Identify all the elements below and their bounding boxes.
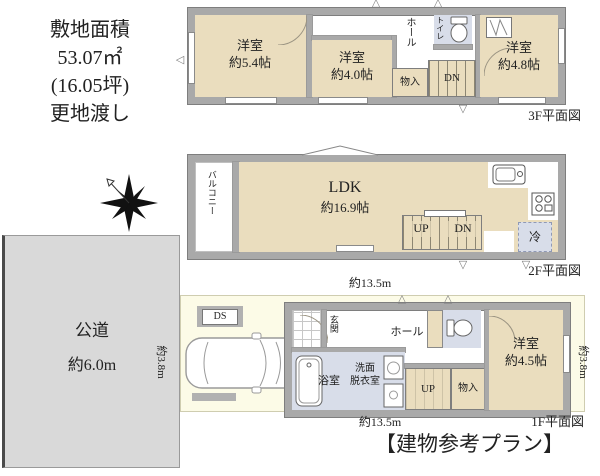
door-arc-icon: [278, 16, 307, 45]
refrigerator-label: 冷: [519, 223, 551, 251]
floor1-bathroom-label: 浴室: [312, 374, 346, 388]
stove-icon: [531, 192, 555, 216]
vent-triangle-icon: ◁: [174, 55, 186, 65]
floor2-ldk-size: 約16.9帖: [290, 200, 400, 217]
floor-plan-sheet: 敷地面積 53.07㎡ (16.05坪) 更地渡し 公道 約6.0m 洋室 約5…: [0, 0, 600, 476]
refrigerator-space: 冷: [518, 222, 552, 252]
window: [188, 32, 195, 84]
window: [225, 97, 277, 104]
floor3-storage: 物入: [392, 68, 428, 97]
wall: [322, 310, 326, 350]
window: [336, 245, 374, 252]
vent-triangle-icon: ▽: [455, 104, 471, 114]
floor1-storage: 物入: [451, 368, 485, 410]
vent-triangle-icon: ▽: [455, 260, 471, 270]
floor1-closet: [427, 310, 443, 348]
window: [563, 335, 570, 373]
vent-triangle-icon: △: [440, 294, 456, 304]
closet-hanger-icon: [486, 17, 512, 38]
door-arc-icon: [484, 48, 512, 76]
road-name: 公道: [5, 320, 179, 342]
floor3-hall-label: ホール: [404, 17, 415, 47]
window: [318, 97, 368, 104]
kitchen-sink-icon: [492, 164, 526, 185]
floor1-room-label: 洋室 約4.5帖: [489, 336, 563, 370]
floor2-balcony-label: バルコニー: [206, 170, 216, 215]
floor1-stairs: UP: [405, 368, 451, 410]
floor3-caption: 3F平面図: [495, 105, 581, 124]
land-condition: 更地渡し: [6, 100, 174, 128]
floor3-toilet-label: トイレ: [435, 16, 444, 40]
floor3-stairs: DN: [428, 60, 476, 97]
vent-triangle-icon: △: [394, 294, 410, 304]
floor1-stairs-up: UP: [406, 369, 450, 409]
floor3-stairs-label: DN: [429, 61, 475, 96]
floor3-room-b-label: 洋室 約4.0帖: [305, 50, 399, 84]
washing-machine-icon: [383, 355, 404, 380]
plan-title: 【建物参考プラン】: [375, 431, 555, 458]
wall: [434, 45, 472, 49]
vent-triangle-icon: △: [368, 0, 384, 8]
window: [498, 97, 546, 104]
vent-triangle-icon: △: [430, 0, 446, 8]
stair-void: [484, 231, 514, 252]
floor1-caption: 1F平面図: [498, 411, 584, 430]
toilet-icon: [446, 316, 474, 340]
floor2-ldk-name: LDK: [290, 178, 400, 199]
floor2-caption: 2F平面図: [495, 260, 581, 279]
duct-space-label: DS: [203, 310, 237, 324]
stair-landing: [424, 210, 466, 217]
floor1-washroom-label: 洗面 脱衣室: [346, 362, 384, 388]
floor2-stairs-up: UP: [404, 221, 438, 237]
parking-stopper: [192, 393, 236, 401]
roof-vent-icon: [300, 144, 380, 156]
site-info: 敷地面積 53.07㎡ (16.05坪) 更地渡し: [6, 16, 174, 128]
public-road-area: 公道 約6.0m: [2, 235, 180, 468]
duct-space: DS: [202, 309, 238, 325]
dimension-top: 約13.5m: [335, 274, 405, 291]
dimension-left: 約3.8m: [156, 332, 170, 392]
dimension-right: 約3.8m: [578, 332, 592, 392]
floor1-entrance-label: 玄関: [328, 315, 338, 333]
toilet-icon: [447, 16, 471, 44]
road-width: 約6.0m: [5, 356, 179, 377]
site-area-tsubo: (16.05坪): [6, 72, 174, 100]
vanity-icon: [383, 383, 404, 408]
compass-north-icon: [98, 172, 160, 234]
floor2-stairs-down: DN: [446, 221, 480, 237]
site-area-label: 敷地面積: [6, 16, 174, 44]
floor1-hall-label: ホール: [382, 325, 432, 339]
dimension-bottom: 約13.5m: [345, 413, 415, 430]
site-area-sqm: 53.07㎡: [6, 44, 174, 72]
window: [558, 28, 565, 64]
